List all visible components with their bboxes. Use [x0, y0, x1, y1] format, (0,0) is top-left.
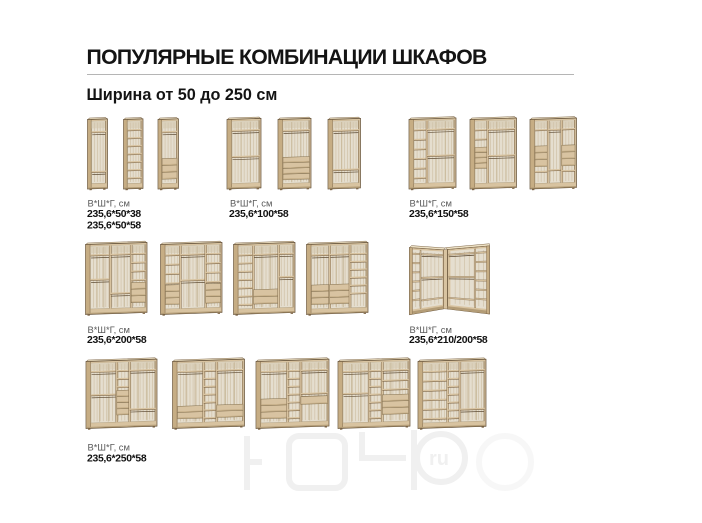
svg-text:В*Ш*Г, см: В*Ш*Г, см: [88, 324, 130, 335]
svg-text:В*Ш*Г, см: В*Ш*Г, см: [88, 198, 130, 209]
svg-text:В*Ш*Г, см: В*Ш*Г, см: [410, 198, 452, 209]
svg-text:235,6*100*58: 235,6*100*58: [229, 209, 289, 220]
svg-text:235,6*250*58: 235,6*250*58: [87, 453, 147, 464]
svg-text:Ширина от 50 до 250 см: Ширина от 50 до 250 см: [87, 86, 278, 104]
svg-text:235,6*50*38: 235,6*50*38: [87, 209, 141, 220]
svg-text:В*Ш*Г, см: В*Ш*Г, см: [230, 198, 272, 209]
svg-text:235,6*150*58: 235,6*150*58: [409, 209, 469, 220]
svg-text:235,6*200*58: 235,6*200*58: [87, 335, 147, 346]
svg-text:235,6*50*58: 235,6*50*58: [87, 221, 141, 232]
svg-text:В*Ш*Г, см: В*Ш*Г, см: [88, 441, 130, 452]
svg-text:ПОПУЛЯРНЫЕ КОМБИНАЦИИ ШКАФОВ: ПОПУЛЯРНЫЕ КОМБИНАЦИИ ШКАФОВ: [87, 46, 488, 69]
svg-text:ru: ru: [429, 448, 449, 470]
svg-text:235,6*210/200*58: 235,6*210/200*58: [409, 335, 488, 346]
svg-text:В*Ш*Г, см: В*Ш*Г, см: [410, 324, 452, 335]
